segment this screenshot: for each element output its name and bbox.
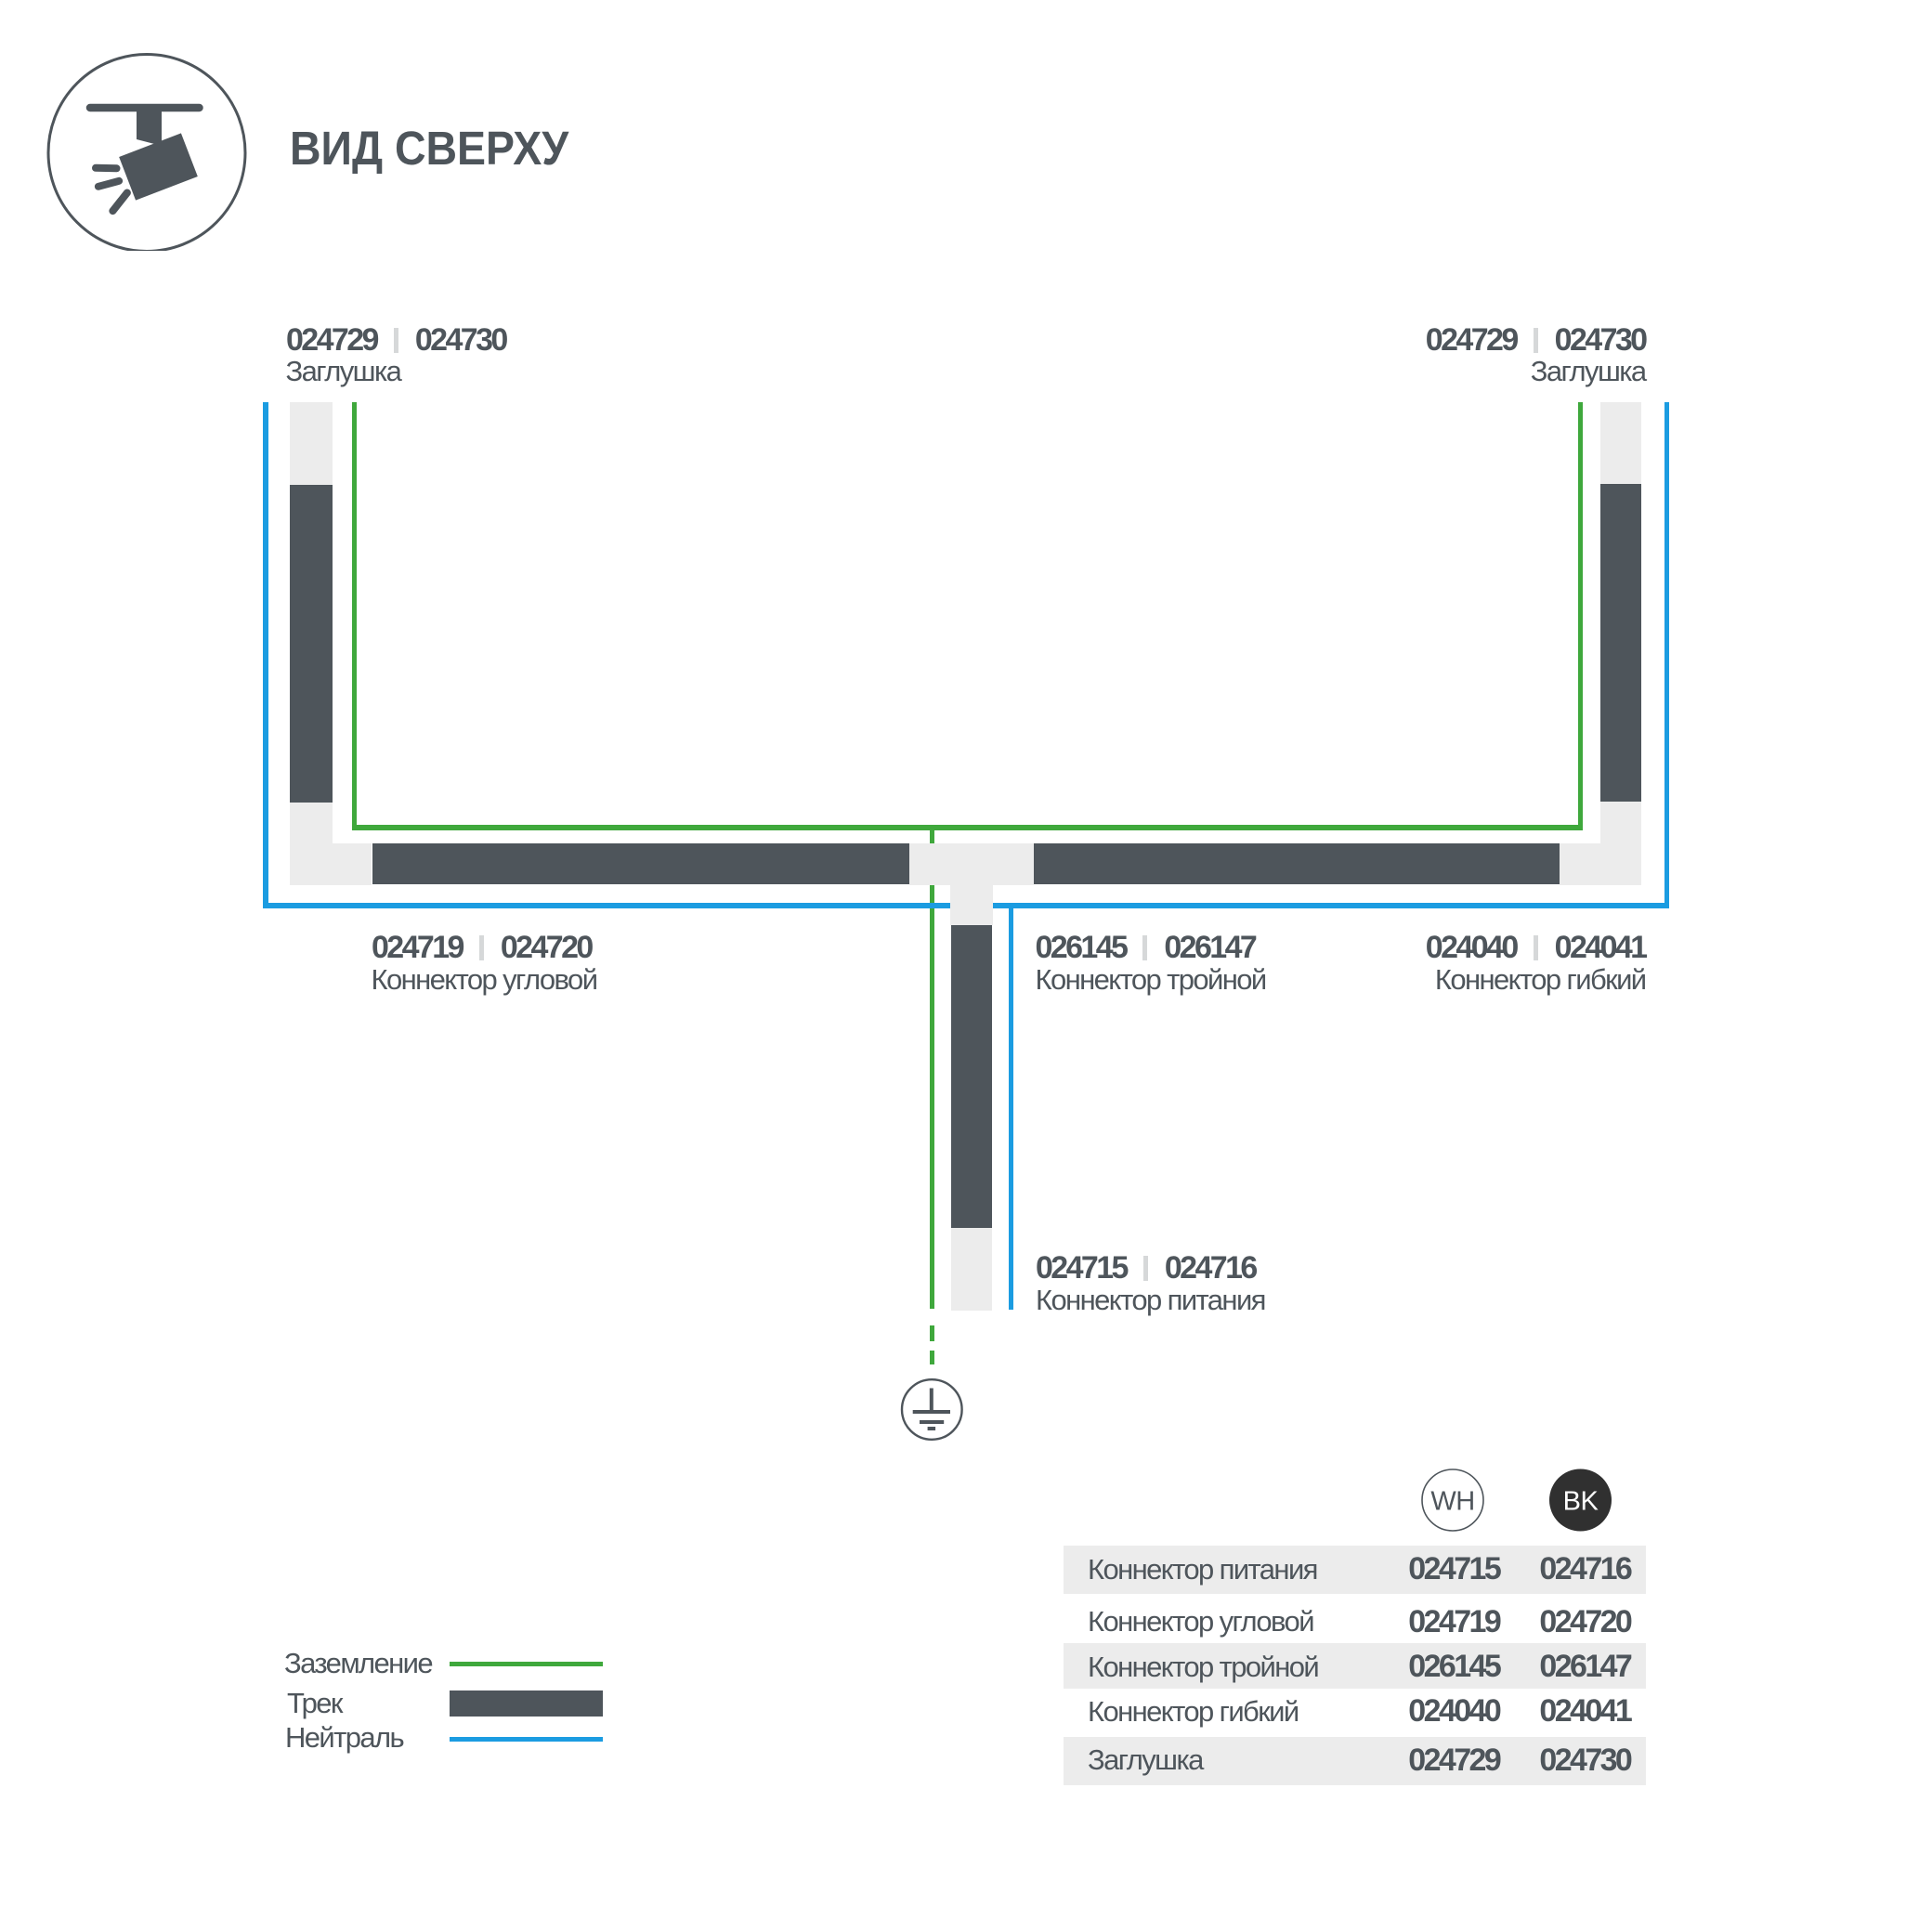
svg-text:WH: WH [1430, 1487, 1474, 1517]
svg-text:BK: BK [1563, 1487, 1599, 1517]
